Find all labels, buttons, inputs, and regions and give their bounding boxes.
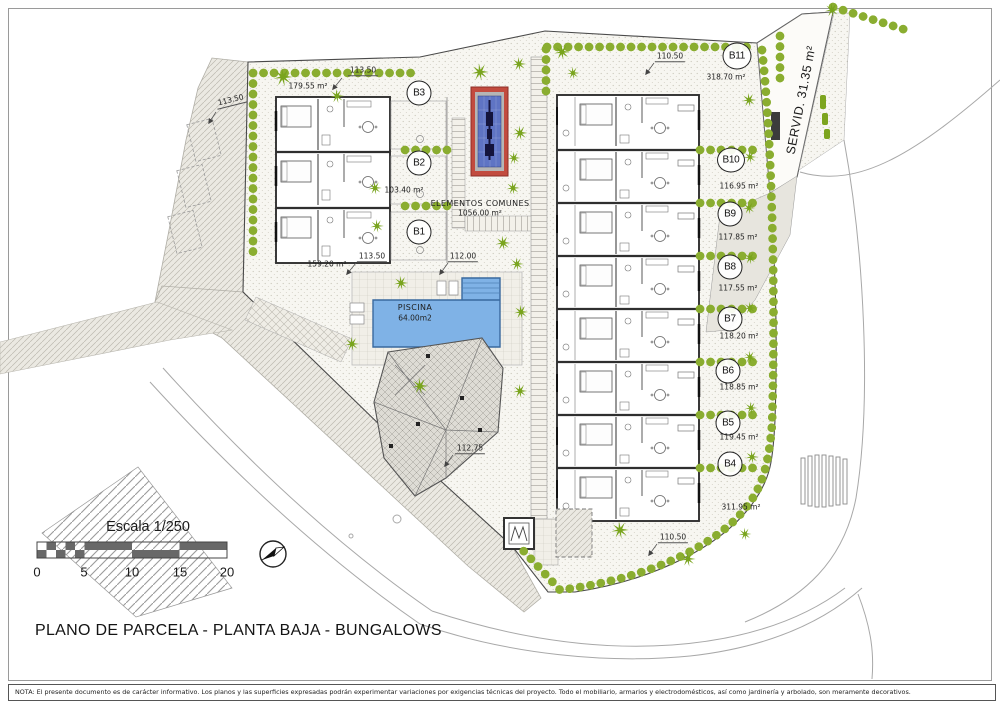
dim-width-top: 113.50 — [348, 66, 378, 76]
bungalow-circle-b6: B6 — [716, 359, 741, 384]
area-b3: 179.55 m² — [289, 82, 328, 90]
crosswalk-bottom-right — [801, 455, 847, 507]
page-title: PLANO DE PARCELA - PLANTA BAJA - BUNGALO… — [35, 622, 442, 640]
plan-sheet: B1 B2 B3 B4 B5 B6 B7 B8 B9 B10 B11 159.2… — [0, 0, 1000, 706]
site-plan-drawing — [0, 0, 1000, 706]
area-b11: 318.70 m² — [707, 73, 746, 81]
playground — [471, 87, 508, 176]
area-b6: 118.85 m² — [720, 383, 759, 391]
dim-width-roof: 112.75 — [455, 444, 485, 454]
bungalow-circle-b4: B4 — [718, 452, 743, 477]
common-elements-label: ELEMENTOS COMUNES — [431, 200, 530, 208]
dim-width-right-top: 110.50 — [655, 52, 685, 62]
note-box: NOTA: El presente documento es de caráct… — [8, 684, 996, 701]
bungalow-circle-b2: B2 — [407, 151, 432, 176]
area-b4: 311.95 m² — [722, 503, 761, 511]
bungalow-circle-b11: B11 — [723, 43, 752, 70]
scale-tick-5: 5 — [80, 565, 87, 580]
scale-tick-10: 10 — [125, 565, 139, 580]
scale-tick-0: 0 — [33, 565, 40, 580]
pool-label: PISCINA — [398, 304, 432, 312]
area-b5: 119.45 m² — [720, 433, 759, 441]
scale-tick-15: 15 — [173, 565, 187, 580]
bungalow-circle-b3: B3 — [407, 81, 432, 106]
area-b10: 116.95 m² — [720, 182, 759, 190]
scale-label: Escala 1/250 — [106, 519, 190, 535]
area-b1: 159.20 m² — [308, 260, 347, 268]
bungalow-circle-b8: B8 — [718, 255, 743, 280]
bungalow-circle-b1: B1 — [407, 220, 432, 245]
pool-area: 64.00m2 — [398, 314, 432, 322]
area-b2: 103.40 m² — [385, 186, 424, 194]
area-b7: 118.20 m² — [720, 332, 759, 340]
dim-width-bottom: 113.50 — [357, 252, 387, 262]
dim-width-right-bottom: 110.50 — [658, 533, 688, 543]
area-b9: 117.85 m² — [719, 233, 758, 241]
area-b8: 117.55 m² — [719, 284, 758, 292]
scale-tick-20: 20 — [220, 565, 234, 580]
bungalow-circle-b7: B7 — [718, 307, 743, 332]
bungalow-circle-b9: B9 — [718, 202, 743, 227]
common-elements-area: 1056.00 m² — [458, 209, 502, 217]
dim-width-mid: 112.00 — [448, 252, 478, 262]
right-building — [557, 95, 699, 521]
bungalow-circle-b10: B10 — [717, 148, 745, 173]
north-arrow — [260, 541, 286, 567]
